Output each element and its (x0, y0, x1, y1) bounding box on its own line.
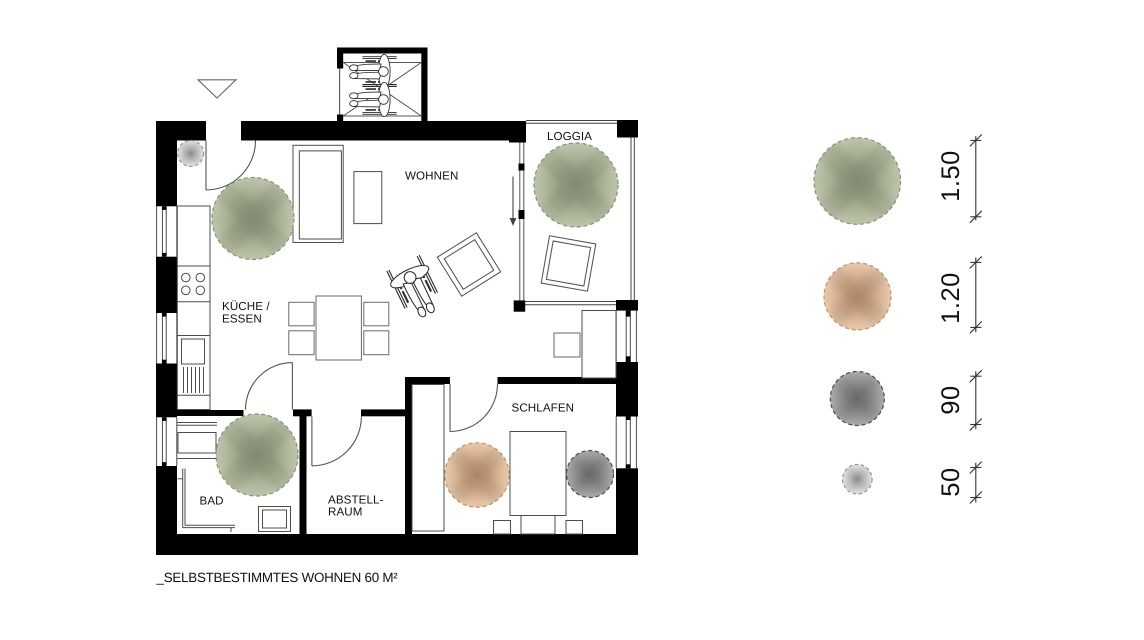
svg-text:BAD: BAD (200, 495, 224, 508)
svg-text:WOHNEN: WOHNEN (405, 170, 458, 183)
svg-text:50: 50 (937, 467, 965, 496)
svg-text:SCHLAFEN: SCHLAFEN (512, 402, 575, 415)
svg-text:1.20: 1.20 (937, 272, 965, 324)
svg-text:90: 90 (937, 385, 965, 414)
svg-text:LOGGIA: LOGGIA (547, 130, 592, 143)
svg-text:1.50: 1.50 (937, 150, 965, 202)
svg-text:ESSEN: ESSEN (222, 313, 262, 326)
svg-text:KÜCHE /: KÜCHE / (222, 300, 270, 313)
svg-text:_SELBSTBESTIMMTES WOHNEN 60 M²: _SELBSTBESTIMMTES WOHNEN 60 M² (156, 570, 399, 585)
svg-text:RAUM: RAUM (328, 506, 363, 519)
